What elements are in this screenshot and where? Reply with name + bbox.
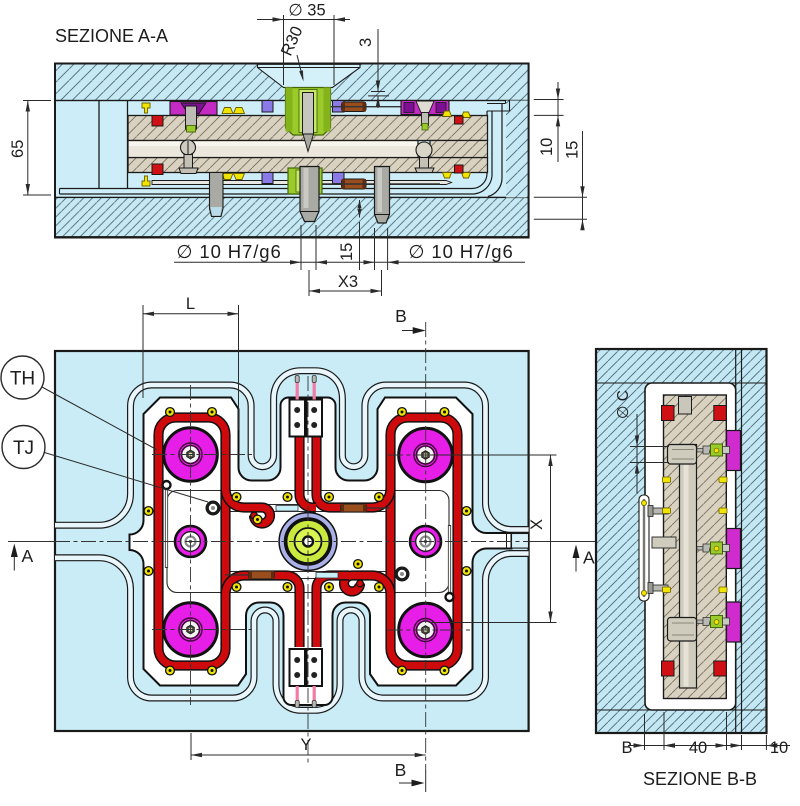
svg-text:65: 65	[9, 140, 27, 158]
svg-text:10: 10	[770, 739, 788, 757]
svg-text:B: B	[395, 760, 407, 780]
svg-text:∅ C: ∅ C	[615, 390, 632, 419]
svg-text:SEZIONE A-A: SEZIONE A-A	[55, 26, 168, 46]
svg-text:L: L	[186, 295, 195, 313]
svg-text:B: B	[395, 306, 407, 326]
svg-text:∅ 10 H7/g6: ∅ 10 H7/g6	[408, 241, 513, 262]
svg-text:40: 40	[689, 739, 707, 757]
svg-text:3: 3	[357, 38, 375, 47]
svg-text:B: B	[621, 739, 632, 757]
svg-text:10: 10	[538, 138, 556, 156]
svg-text:SEZIONE B-B: SEZIONE B-B	[643, 769, 757, 789]
svg-text:X: X	[528, 519, 546, 530]
svg-text:15: 15	[338, 243, 356, 261]
svg-text:X3: X3	[338, 273, 358, 291]
svg-text:15: 15	[564, 141, 582, 159]
svg-text:TJ: TJ	[13, 438, 34, 459]
svg-text:A: A	[22, 546, 34, 566]
svg-text:TH: TH	[10, 369, 35, 390]
svg-text:R30: R30	[278, 24, 307, 59]
svg-text:Y: Y	[300, 736, 311, 754]
svg-text:∅ 10 H7/g6: ∅ 10 H7/g6	[176, 241, 281, 262]
svg-text:∅ 35: ∅ 35	[288, 2, 325, 20]
svg-text:A: A	[583, 548, 595, 568]
